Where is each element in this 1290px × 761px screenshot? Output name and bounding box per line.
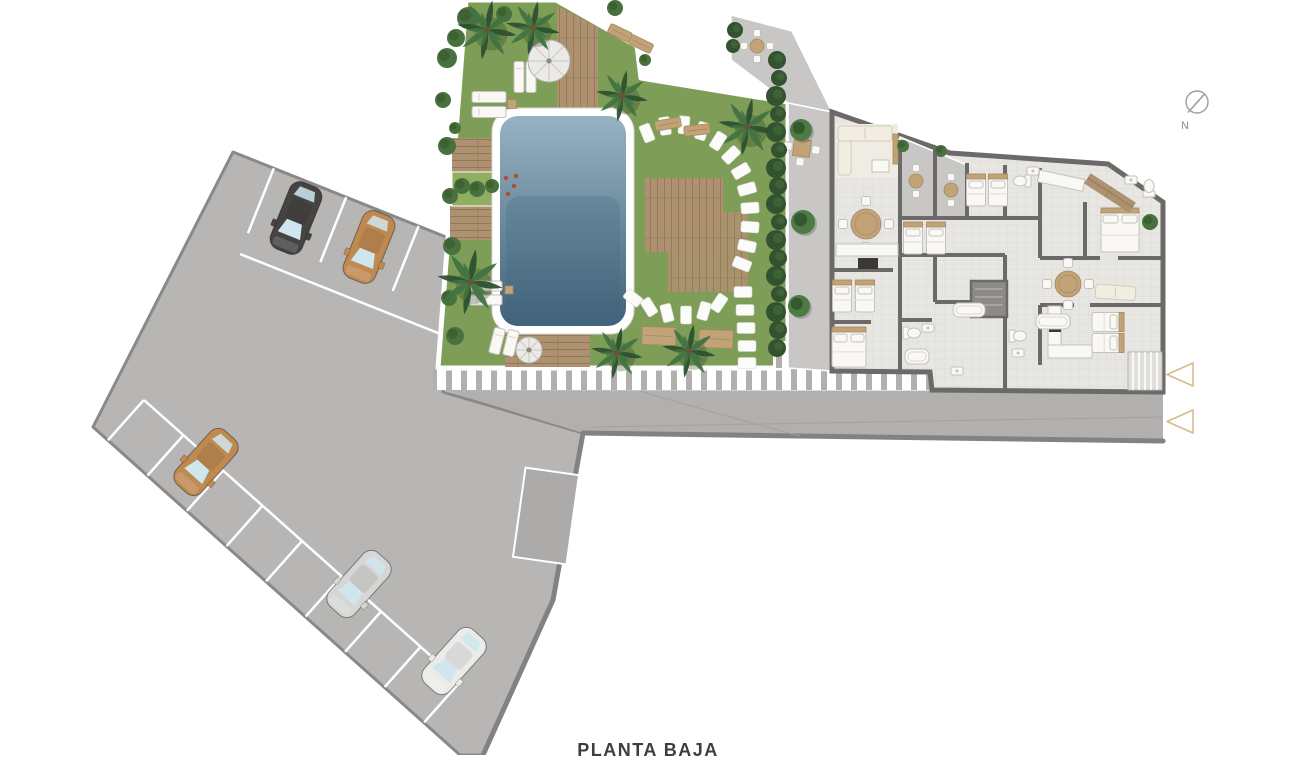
entrance-arrows (1167, 363, 1193, 433)
hedge-bush (766, 158, 786, 178)
garden-bush (443, 237, 461, 255)
hedge-bush (769, 321, 787, 339)
sink (951, 367, 963, 375)
tv-unit (893, 134, 898, 164)
hedge-bush (770, 106, 786, 122)
marked-parking-space (513, 468, 579, 565)
compass-north-label: N (1181, 120, 1189, 132)
garden-bush (469, 181, 485, 197)
staircase (1128, 352, 1162, 390)
single-bed (856, 280, 875, 312)
hedge-bush (769, 177, 787, 195)
sink (1125, 176, 1137, 184)
kitchen-counter (836, 244, 898, 256)
hedge-bush (771, 214, 787, 230)
hedge-bush (768, 339, 786, 357)
garden-bush (607, 0, 623, 16)
sofa (838, 141, 851, 175)
hedge-bush (769, 249, 787, 267)
sofa (838, 126, 892, 141)
bathtub (953, 303, 985, 317)
hedge-bush (766, 86, 786, 106)
kitchen-appliance (858, 258, 878, 269)
garden-bench (684, 124, 711, 137)
garden-bush (446, 327, 464, 345)
swimming-pool (492, 108, 634, 334)
sofa (1095, 284, 1136, 301)
toilet (1143, 180, 1155, 198)
hedge-bush (726, 39, 740, 53)
double-bed (1101, 208, 1139, 252)
sink (1027, 167, 1039, 175)
hedge-bush (766, 230, 786, 250)
sun-lounger (472, 92, 506, 103)
site-plan: N (0, 0, 1290, 755)
garden-bush (447, 29, 465, 47)
hedge-bush (766, 194, 786, 214)
plan-title: PLANTA BAJA (577, 740, 719, 761)
hedge-bush (727, 22, 743, 38)
bathtub (1036, 314, 1070, 329)
hedge-bush (771, 286, 787, 302)
hedge-bush (766, 266, 786, 286)
garden-bush (437, 48, 457, 68)
entrance-arrow-icon (1167, 410, 1193, 433)
parasol (516, 337, 542, 363)
garden-bush (438, 137, 456, 155)
garden-bench (642, 326, 677, 345)
hedge-bush (771, 70, 787, 86)
single-bed (927, 222, 946, 254)
single-bed (1092, 313, 1124, 332)
hedge-bush (771, 142, 787, 158)
coffee-table (872, 160, 889, 172)
garden-bush (485, 179, 499, 193)
sink (1012, 349, 1024, 357)
garden-bush (454, 178, 470, 194)
single-bed (1092, 334, 1124, 353)
double-bed (832, 327, 866, 367)
single-bed (904, 222, 923, 254)
kitchen-counter (1048, 345, 1092, 358)
pergola-deck (668, 212, 748, 292)
sink (922, 324, 934, 332)
north-compass: N (1181, 91, 1208, 132)
bathtub (905, 349, 929, 364)
entrance-arrow-icon (1167, 363, 1193, 386)
single-bed (989, 174, 1008, 206)
toilet (903, 327, 921, 339)
single-bed (833, 280, 852, 312)
toilet (1014, 175, 1032, 187)
hedge-bush (768, 51, 786, 69)
sun-lounger (514, 62, 524, 93)
toilet (1009, 330, 1027, 342)
garden-bush (639, 54, 651, 66)
hedge-bush (766, 302, 786, 322)
garden-bush (1142, 214, 1158, 230)
garden-bush (449, 122, 461, 134)
sun-lounger (472, 107, 506, 118)
garden-bush (935, 145, 947, 157)
garden-bush (897, 140, 909, 152)
single-bed (967, 174, 986, 206)
garden-bush (435, 92, 451, 108)
